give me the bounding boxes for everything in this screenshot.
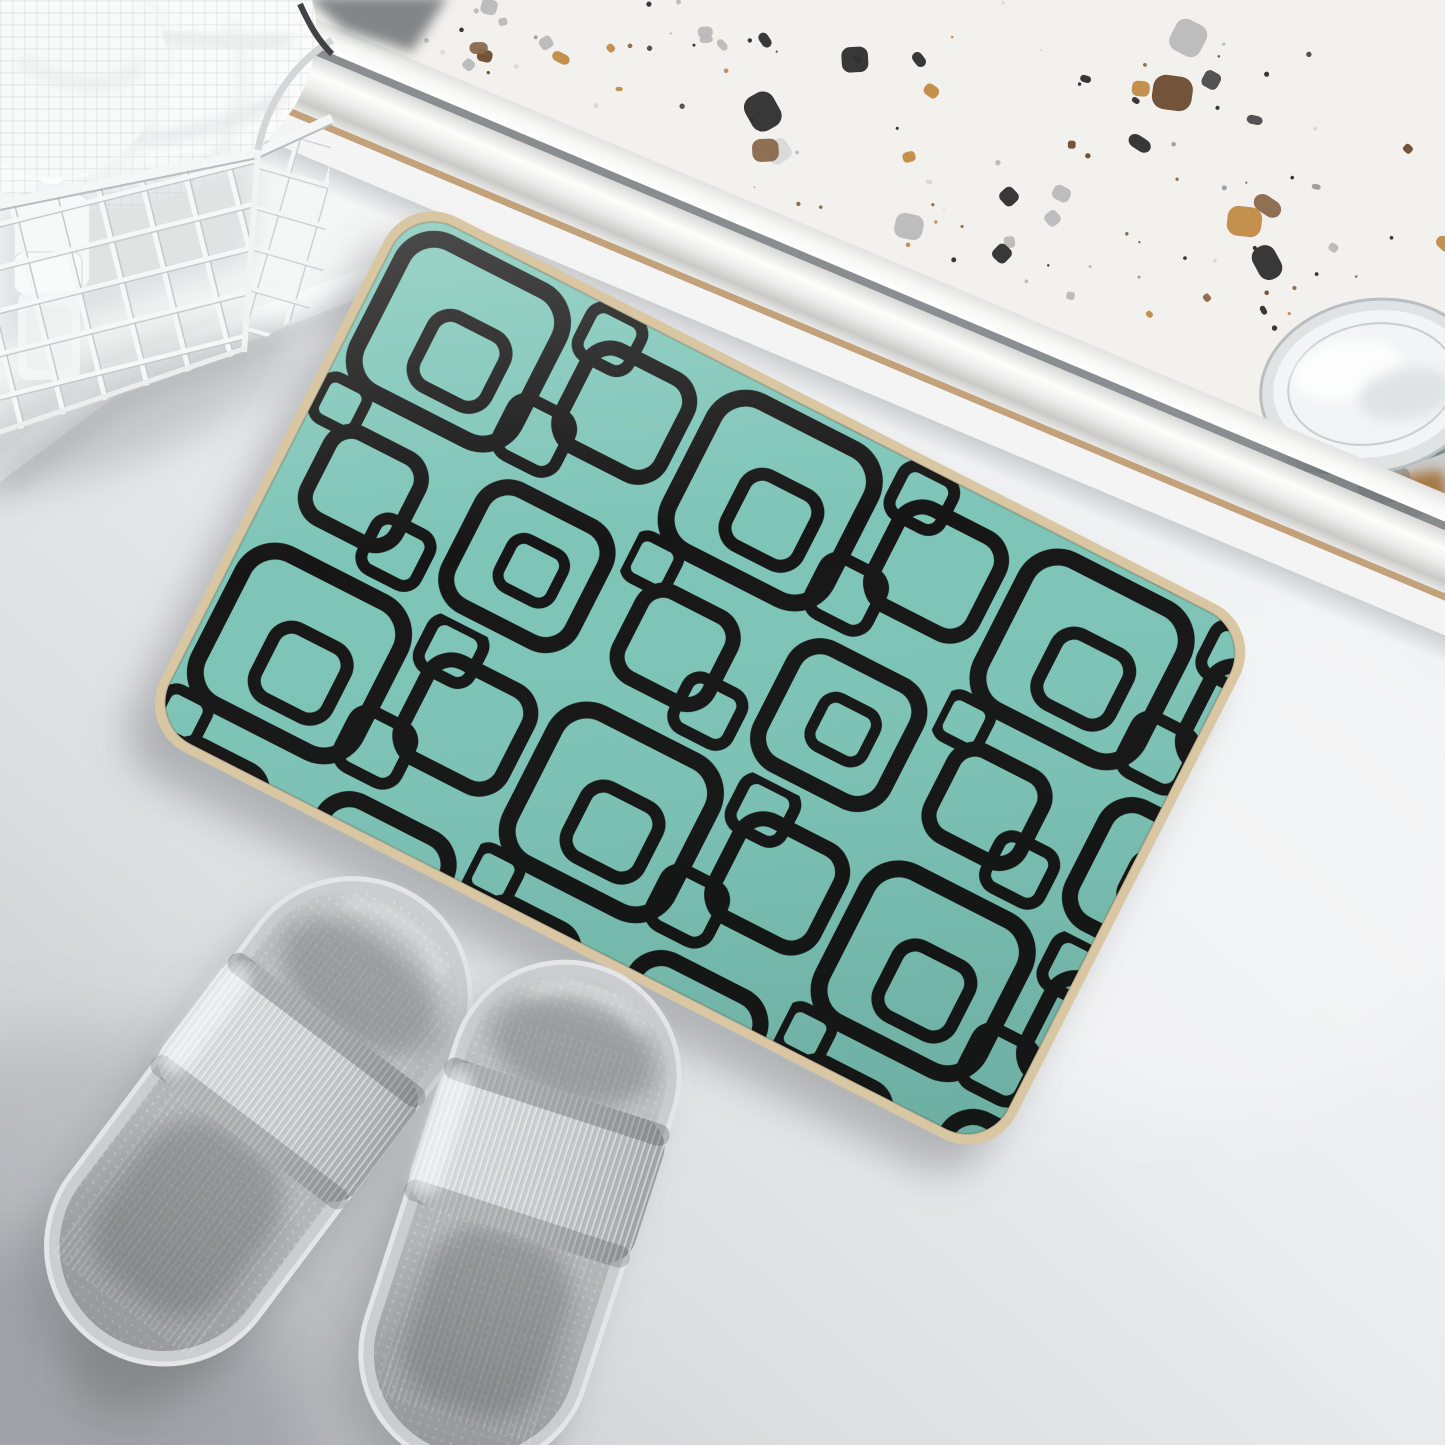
terrazzo-chip: [469, 42, 487, 54]
terrazzo-chip: [752, 138, 780, 162]
terrazzo-chip: [615, 87, 622, 91]
terrazzo-chip: [1068, 141, 1076, 149]
terrazzo-chip: [841, 46, 869, 73]
scene-svg: Bathroom product photo: teal bath mat wi…: [0, 0, 1445, 1445]
photo-stage: Bathroom product photo: teal bath mat wi…: [0, 0, 1445, 1445]
terrazzo-chip: [1131, 80, 1150, 97]
terrazzo-chip: [698, 26, 713, 38]
terrazzo-chip: [1226, 205, 1264, 239]
